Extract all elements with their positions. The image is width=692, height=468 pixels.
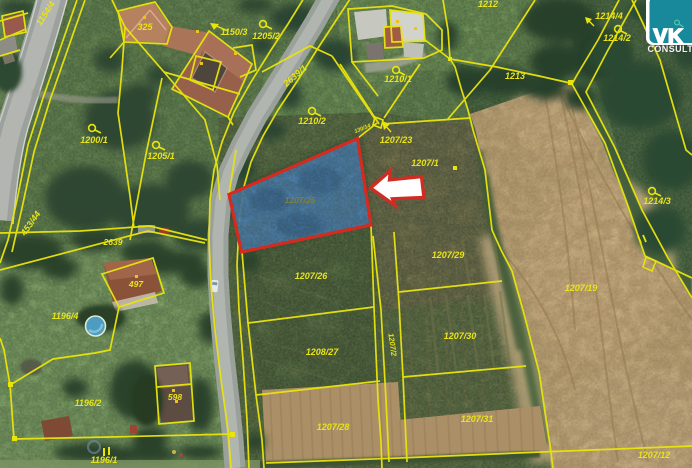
svg-text:1207/31: 1207/31 — [461, 414, 494, 424]
svg-text:1212: 1212 — [478, 0, 498, 9]
svg-text:1207/30: 1207/30 — [444, 331, 477, 341]
svg-text:1210/2: 1210/2 — [298, 116, 326, 126]
svg-text:325: 325 — [137, 22, 153, 32]
svg-text:1196/4: 1196/4 — [52, 311, 79, 321]
svg-text:1150/3: 1150/3 — [221, 27, 248, 37]
svg-text:1196/2: 1196/2 — [75, 398, 102, 408]
svg-text:598: 598 — [168, 392, 182, 402]
svg-text:1207/25: 1207/25 — [285, 195, 316, 205]
svg-text:1205/1: 1205/1 — [147, 151, 175, 161]
svg-text:1207/23: 1207/23 — [380, 135, 413, 145]
svg-text:1214/2: 1214/2 — [603, 33, 631, 43]
svg-text:1196/1: 1196/1 — [91, 455, 118, 465]
svg-text:CONSULT: CONSULT — [648, 44, 692, 54]
svg-text:1207/19: 1207/19 — [565, 283, 598, 293]
svg-text:1207/1: 1207/1 — [411, 158, 439, 168]
svg-text:1214/4: 1214/4 — [595, 11, 623, 21]
svg-text:1207/26: 1207/26 — [295, 271, 329, 281]
svg-text:497: 497 — [128, 279, 144, 289]
svg-text:1207/12: 1207/12 — [638, 450, 671, 460]
svg-text:1207/28: 1207/28 — [317, 422, 350, 432]
svg-text:1205/2: 1205/2 — [252, 31, 280, 41]
svg-text:1208/27: 1208/27 — [306, 347, 340, 357]
svg-text:2639: 2639 — [103, 237, 123, 247]
svg-text:1200/1: 1200/1 — [80, 135, 108, 145]
svg-text:1213: 1213 — [505, 71, 525, 81]
svg-text:1210/1: 1210/1 — [384, 74, 412, 84]
svg-text:1207/29: 1207/29 — [432, 250, 465, 260]
svg-text:1214/3: 1214/3 — [643, 196, 671, 206]
